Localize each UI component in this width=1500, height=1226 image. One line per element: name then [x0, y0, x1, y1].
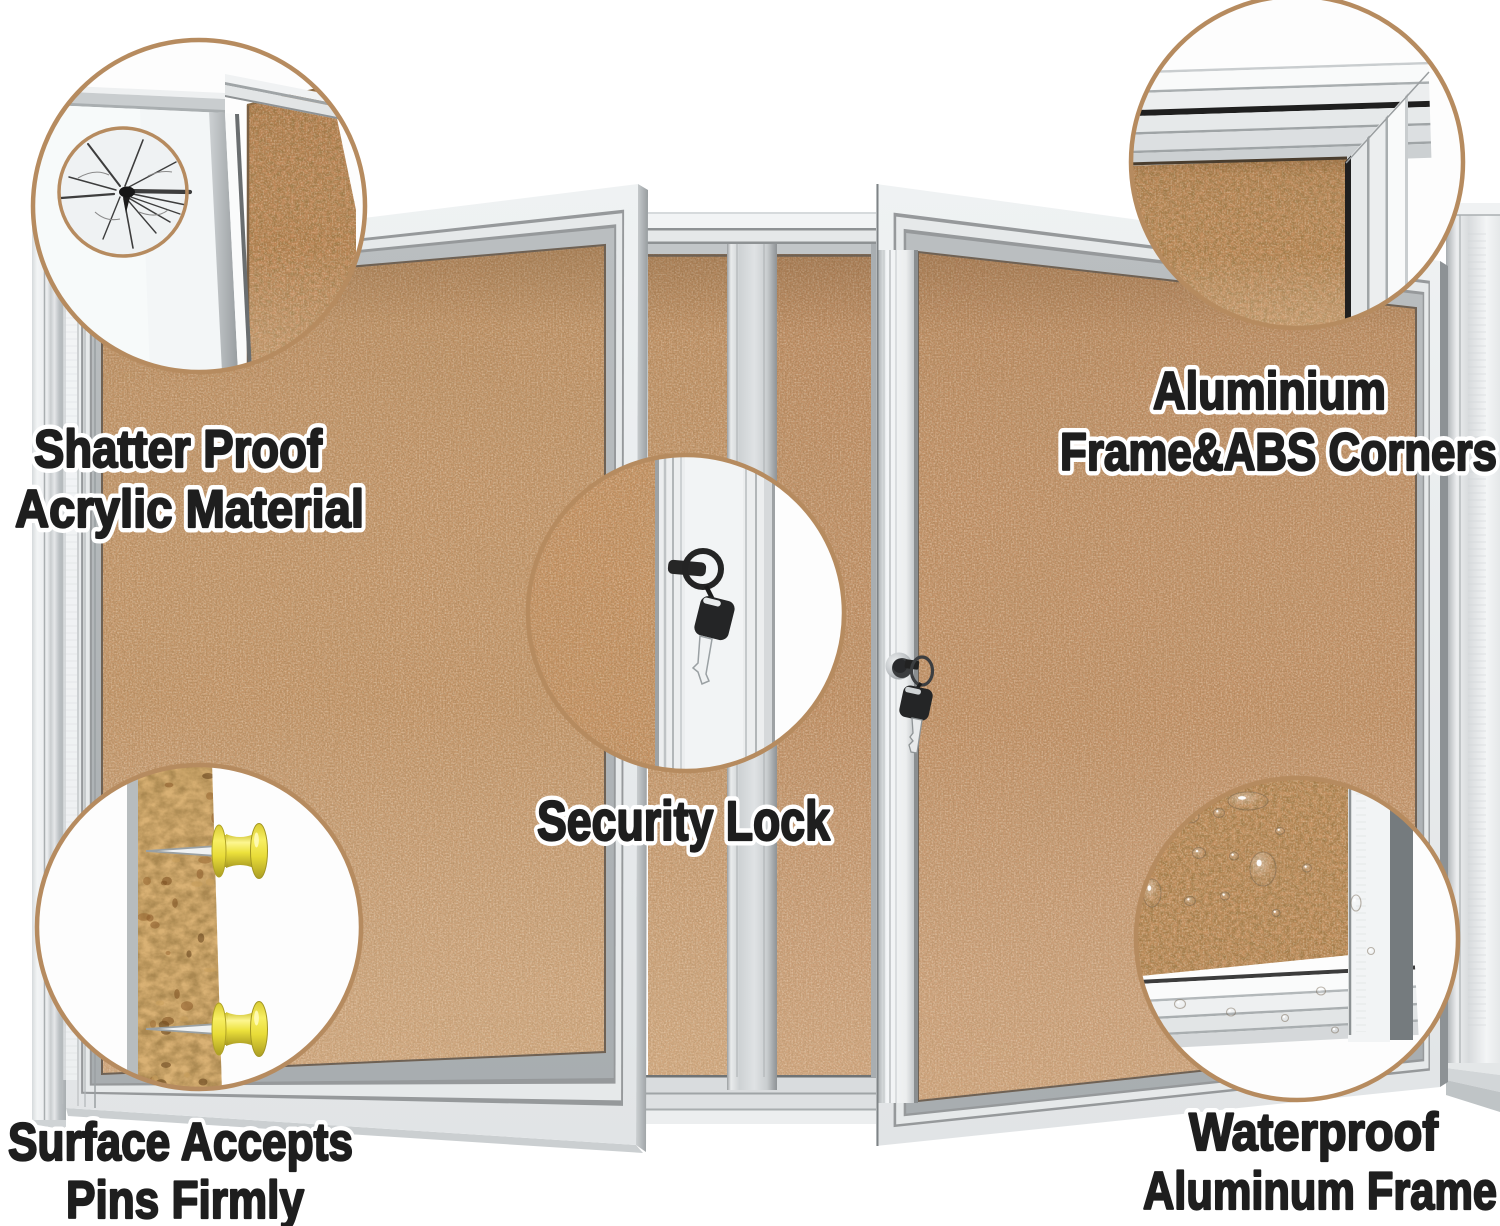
- svg-text:Security Lock: Security Lock: [537, 789, 831, 852]
- svg-text:Aluminium: Aluminium: [1153, 362, 1386, 421]
- svg-text:Shatter Proof: Shatter Proof: [34, 420, 322, 479]
- svg-text:Surface Accepts: Surface Accepts: [8, 1113, 353, 1172]
- svg-text:Pins Firmly: Pins Firmly: [66, 1171, 304, 1226]
- svg-text:Frame&ABS Corners: Frame&ABS Corners: [1060, 423, 1497, 482]
- svg-text:Waterproof: Waterproof: [1189, 1103, 1438, 1162]
- svg-text:Aluminum Frame: Aluminum Frame: [1143, 1162, 1497, 1221]
- svg-text:Acrylic Material: Acrylic Material: [15, 480, 364, 539]
